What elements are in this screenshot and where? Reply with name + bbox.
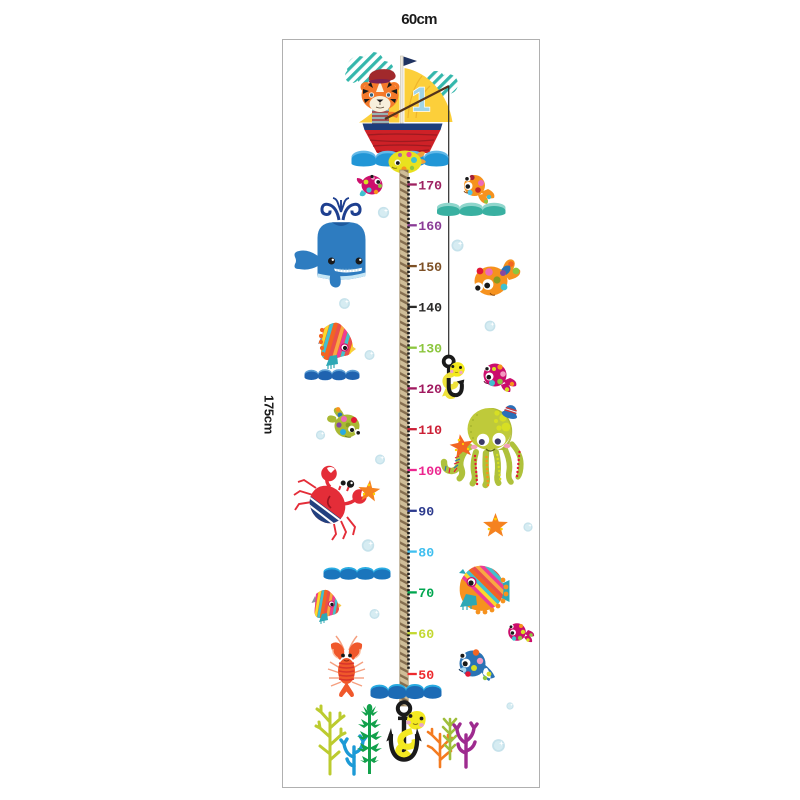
svg-text:110: 110 <box>418 423 442 438</box>
svg-text:130: 130 <box>418 342 442 357</box>
svg-text:170: 170 <box>418 178 442 193</box>
svg-text:80: 80 <box>418 545 434 560</box>
svg-text:90: 90 <box>418 505 434 520</box>
svg-text:70: 70 <box>418 586 434 601</box>
svg-text:160: 160 <box>418 219 442 234</box>
svg-text:100: 100 <box>418 464 442 479</box>
svg-text:50: 50 <box>418 668 434 683</box>
svg-text:140: 140 <box>418 301 442 316</box>
svg-text:175cm: 175cm <box>262 395 277 434</box>
svg-text:150: 150 <box>418 260 442 275</box>
svg-text:120: 120 <box>418 382 442 397</box>
svg-text:60: 60 <box>418 627 434 642</box>
svg-text:60cm: 60cm <box>401 11 437 28</box>
